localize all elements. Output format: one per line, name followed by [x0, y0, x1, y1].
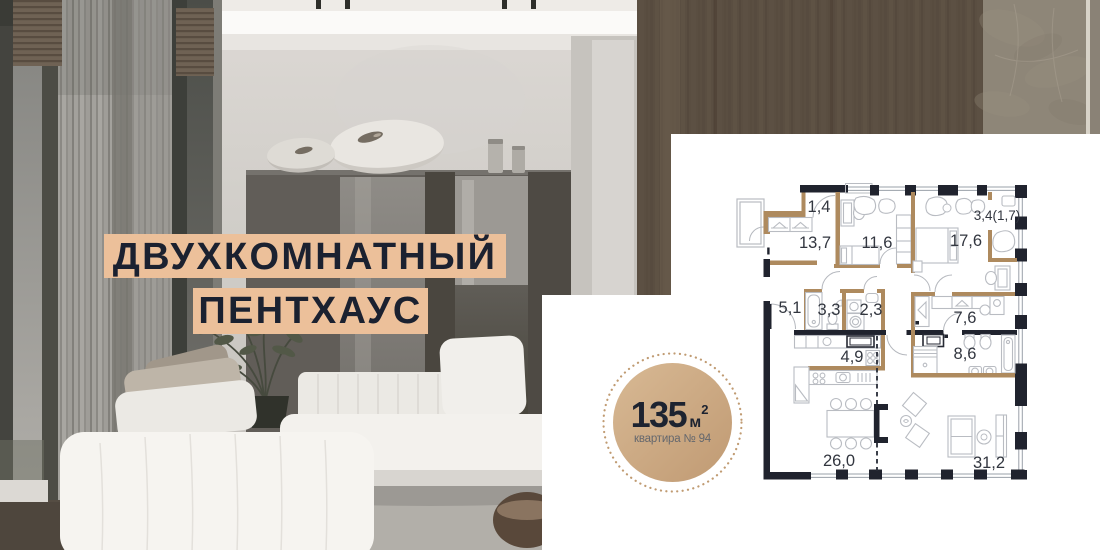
svg-text:26,0: 26,0 [823, 452, 855, 470]
svg-text:5,1: 5,1 [779, 299, 802, 317]
svg-text:2,3: 2,3 [860, 301, 883, 319]
svg-text:17,6: 17,6 [950, 232, 982, 250]
svg-text:4,9: 4,9 [841, 348, 864, 366]
svg-text:8,6: 8,6 [954, 345, 977, 363]
svg-text:3,4(1,7): 3,4(1,7) [974, 208, 1021, 223]
svg-text:13,7: 13,7 [799, 234, 831, 252]
svg-text:31,2: 31,2 [973, 454, 1005, 472]
svg-text:1,4: 1,4 [808, 198, 831, 216]
svg-text:7,6: 7,6 [954, 309, 977, 327]
svg-text:11,6: 11,6 [862, 234, 893, 252]
svg-text:3,3: 3,3 [818, 301, 841, 319]
